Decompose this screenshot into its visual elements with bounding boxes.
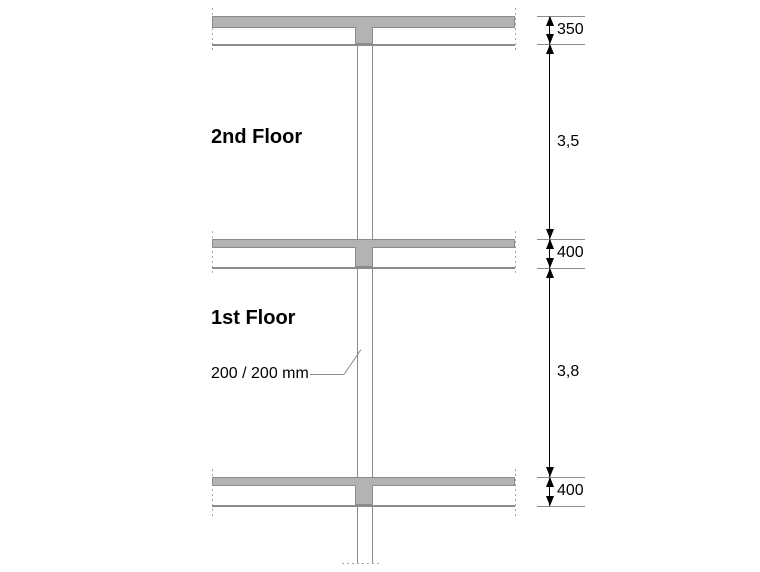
dimension-tick (537, 268, 585, 269)
break-line-right-middle (515, 231, 516, 276)
column-segment-below-ground (357, 507, 373, 563)
dimension-tick (537, 477, 585, 478)
arrow-down-icon (546, 34, 554, 44)
structural-elevation-drawing: 350 3,5 400 3,8 400 2nd Floor 1st Floor … (0, 0, 760, 572)
column-segment-lower (357, 269, 373, 477)
arrow-up-icon (546, 268, 554, 278)
column-capital-middle (355, 247, 373, 267)
arrow-down-icon (546, 496, 554, 506)
arrow-up-icon (546, 16, 554, 26)
arrow-up-icon (546, 477, 554, 487)
column-break-line (342, 563, 380, 564)
arrow-down-icon (546, 258, 554, 268)
floor-label-2nd: 2nd Floor (211, 125, 302, 149)
dimension-tick (537, 506, 585, 507)
dimension-tick (537, 239, 585, 240)
floor-label-1st: 1st Floor (211, 306, 295, 330)
dimension-label-storey-upper: 3,5 (557, 134, 579, 150)
dimension-label-storey-lower: 3,8 (557, 364, 579, 380)
arrow-up-icon (546, 44, 554, 54)
leader-line-horizontal (310, 374, 344, 375)
column-capital-top (355, 27, 373, 44)
arrow-up-icon (546, 239, 554, 249)
arrow-down-icon (546, 229, 554, 239)
break-line-right-top (515, 8, 516, 52)
column-segment-upper (357, 46, 373, 239)
break-line-right-bottom (515, 469, 516, 518)
dimension-label-slab-depth-middle: 400 (557, 245, 584, 261)
dimension-tick (537, 16, 585, 17)
dimension-tick (537, 44, 585, 45)
dimension-label-roof-depth: 350 (557, 22, 584, 38)
break-line-left-middle (212, 231, 213, 276)
dimension-label-slab-depth-bottom: 400 (557, 483, 584, 499)
arrow-down-icon (546, 467, 554, 477)
column-capital-bottom (355, 485, 373, 505)
column-size-label: 200 / 200 mm (211, 366, 309, 382)
